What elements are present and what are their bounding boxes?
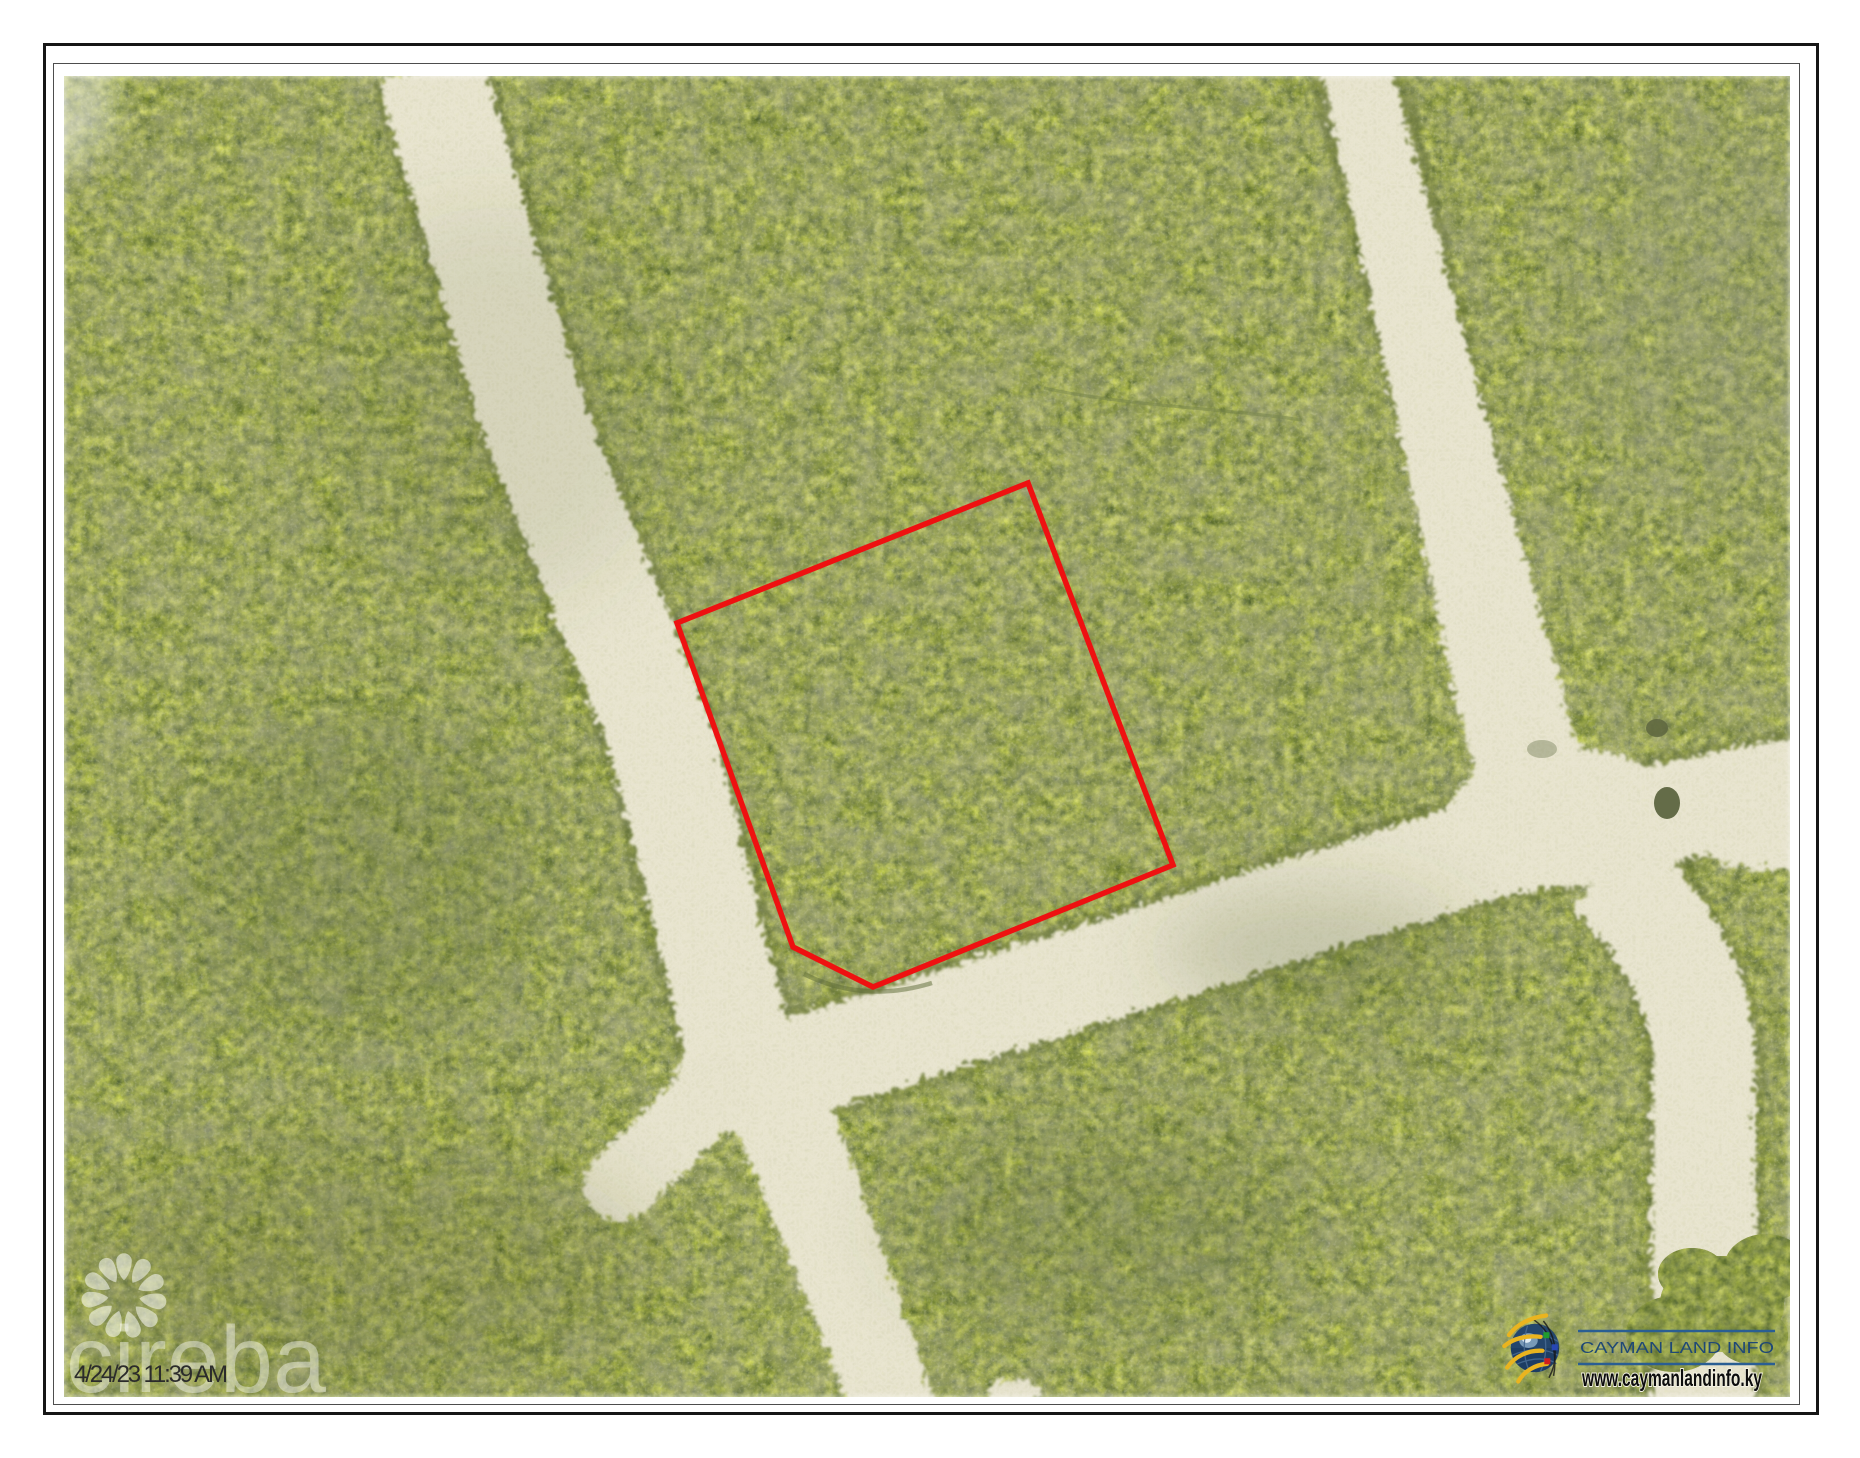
svg-text:CAYMAN LAND INFO: CAYMAN LAND INFO	[1580, 1340, 1774, 1357]
svg-text:4/24/23 11:39 AM: 4/24/23 11:39 AM	[74, 1361, 228, 1388]
svg-text:www.caymanlandinfo.ky: www.caymanlandinfo.ky	[1581, 1365, 1762, 1391]
